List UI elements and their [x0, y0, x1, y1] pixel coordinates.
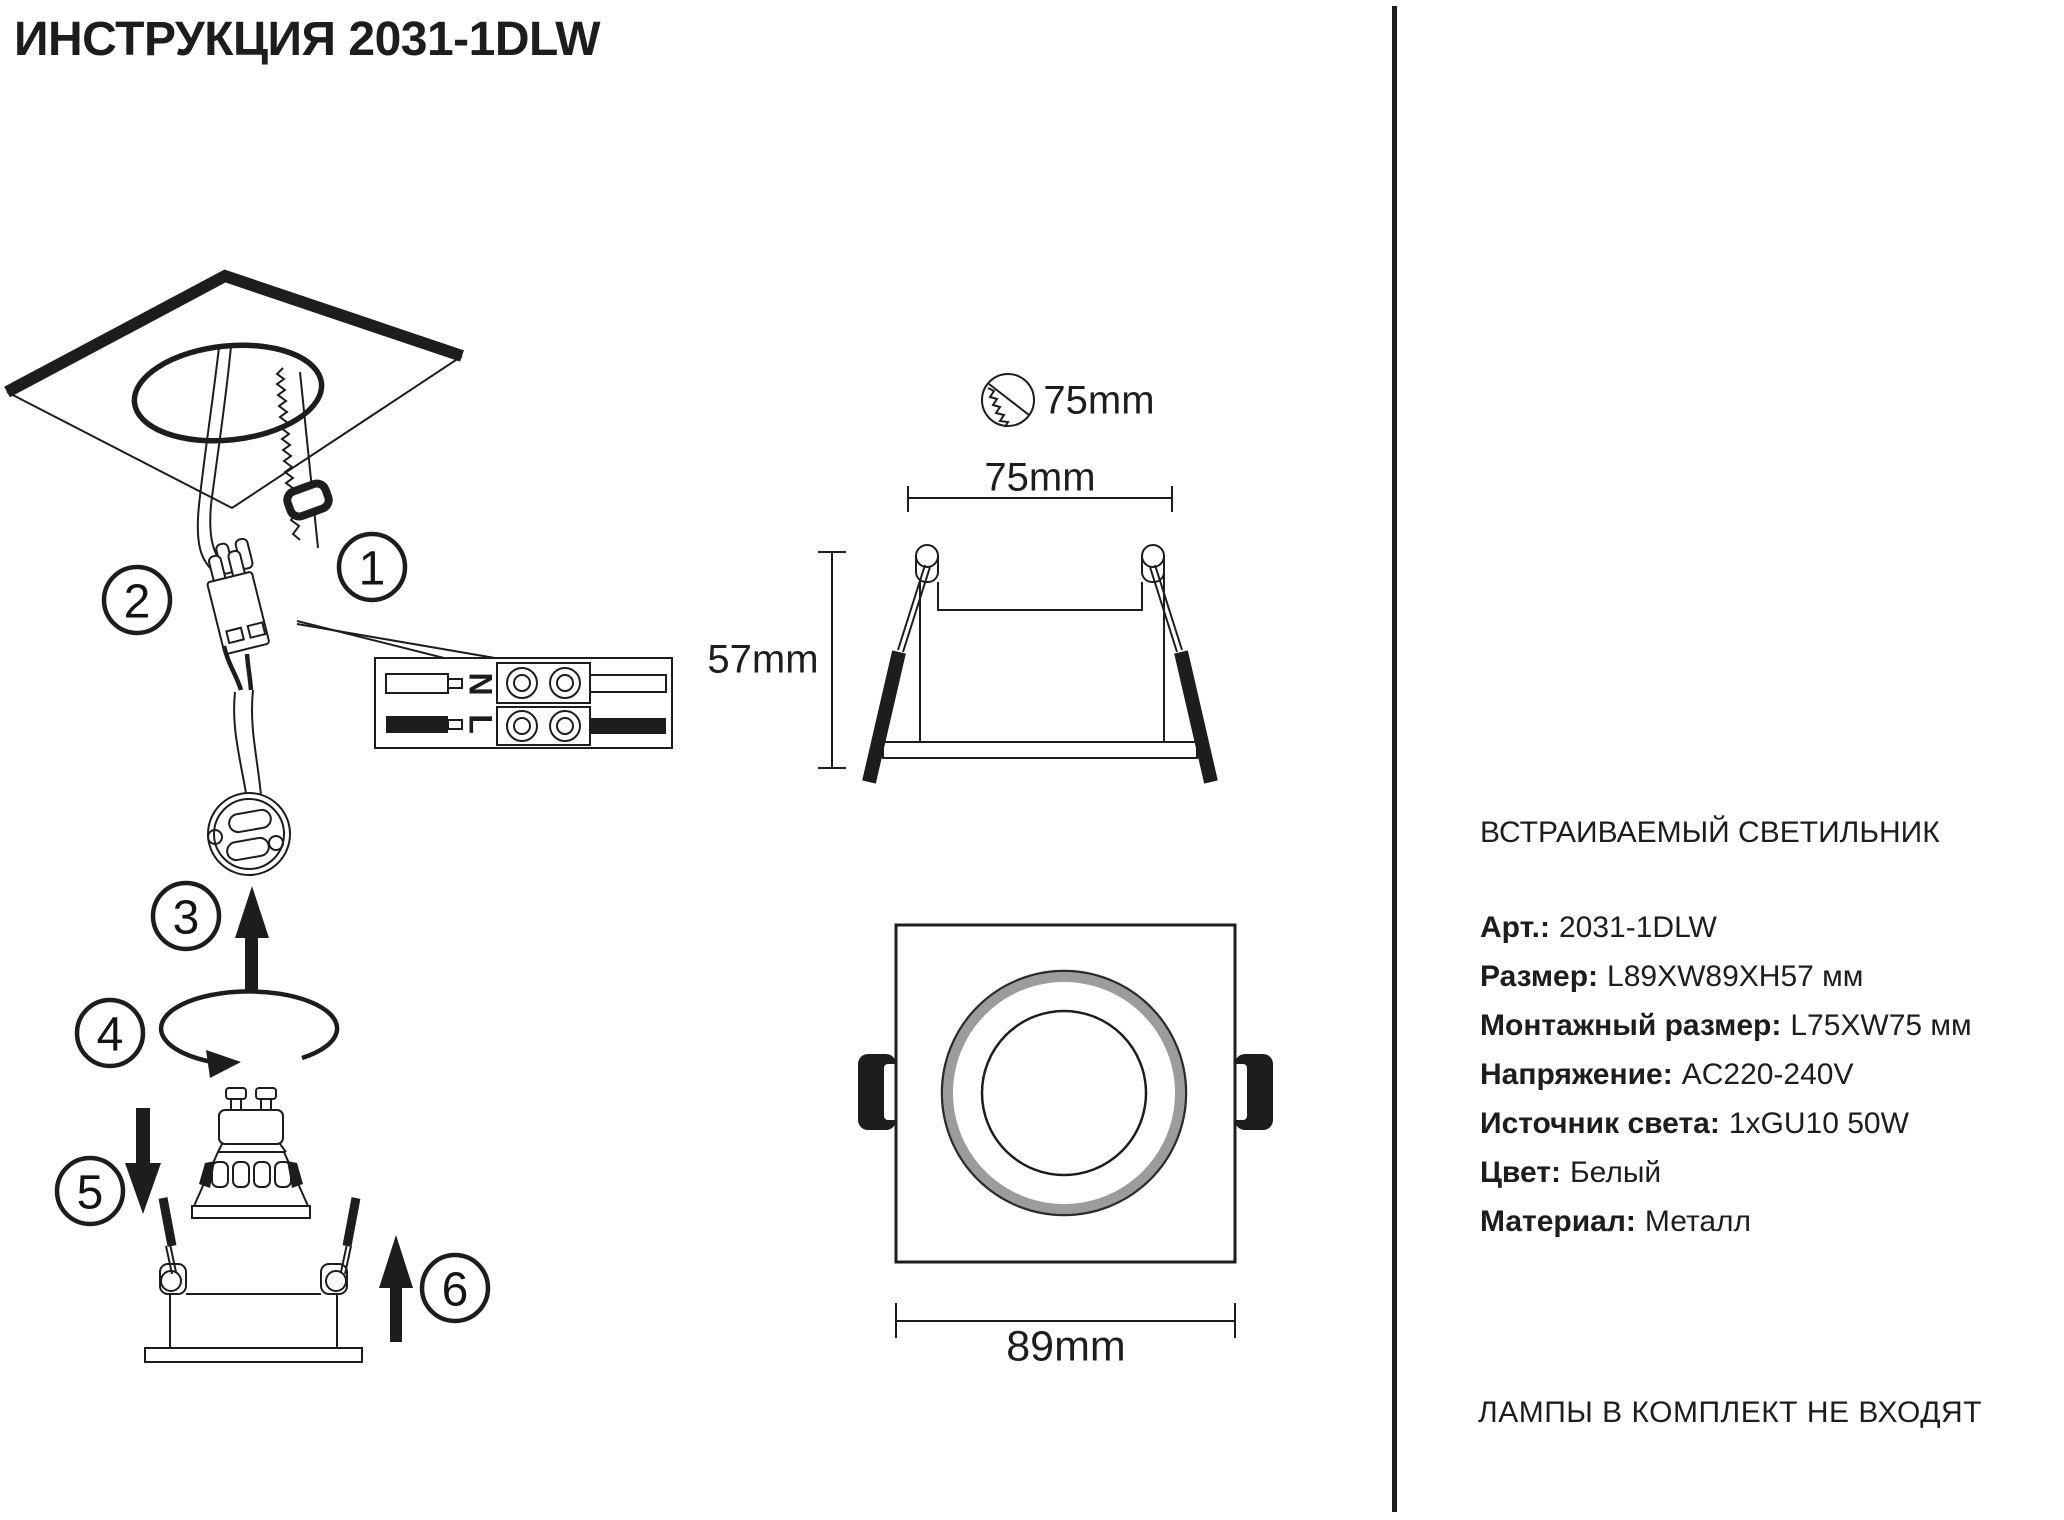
spec-value: 2031-1DLW [1559, 911, 1717, 944]
rotation-arrow [161, 991, 337, 1078]
spec-value: L89XW89XH57 мм [1607, 960, 1863, 993]
wiring-detail-box [375, 658, 672, 748]
page-title: ИНСТРУКЦИЯ 2031-1DLW [14, 12, 600, 67]
neutral-label: N [462, 672, 499, 695]
spec-row-voltage: Напряжение:AC220-240V [1480, 1050, 1972, 1099]
diagram-canvas [0, 0, 2064, 1520]
step-3-number: 3 [173, 891, 200, 946]
live-label: L [462, 714, 499, 734]
spec-list: Арт.:2031-1DLW Размер:L89XW89XH57 мм Мон… [1480, 903, 1972, 1246]
step-6-number: 6 [442, 1263, 469, 1318]
spec-label: Монтажный размер: [1480, 1009, 1781, 1042]
lamps-note: ЛАМПЫ В КОМПЛЕКТ НЕ ВХОДЯТ [1478, 1396, 1982, 1430]
spec-label: Арт.: [1480, 911, 1550, 944]
spec-value: Белый [1570, 1156, 1661, 1189]
spec-label: Цвет: [1480, 1156, 1561, 1189]
step-2-number: 2 [124, 575, 151, 630]
callout-lines [297, 621, 495, 659]
cutout-diameter-label: 75mm [1043, 379, 1154, 424]
step-5-number: 5 [77, 1166, 104, 1221]
arrow-down-step5 [125, 1108, 161, 1214]
mounting-width-label: 75mm [984, 456, 1095, 501]
spec-row-size: Размер:L89XW89XH57 мм [1480, 952, 1972, 1001]
spec-row-art: Арт.:2031-1DLW [1480, 903, 1972, 952]
spec-row-light-source: Источник света:1xGU10 50W [1480, 1099, 1972, 1148]
overall-width-label: 89mm [1006, 1323, 1125, 1372]
step-4-number: 4 [97, 1008, 124, 1063]
spec-label: Размер: [1480, 960, 1598, 993]
spec-row-material: Материал:Металл [1480, 1197, 1972, 1246]
fixture-side-view [869, 545, 1211, 782]
section-divider [1392, 6, 1397, 1512]
fixture-front-view [858, 925, 1273, 1262]
arrow-up-step3 [235, 886, 269, 990]
arrow-up-step6 [379, 1235, 413, 1342]
dim-57-left [818, 552, 846, 768]
spec-value: L75XW75 мм [1790, 1009, 1971, 1042]
spec-row-mounting: Монтажный размер:L75XW75 мм [1480, 1001, 1972, 1050]
spec-value: 1xGU10 50W [1729, 1107, 1909, 1140]
spec-label: Источник света: [1480, 1107, 1720, 1140]
instruction-sheet: { "title": "ИНСТРУКЦИЯ 2031-1DLW", "step… [0, 0, 2064, 1520]
cutout-icon [982, 374, 1034, 427]
spec-value: AC220-240V [1682, 1058, 1854, 1091]
spec-label: Напряжение: [1480, 1058, 1673, 1091]
fixture-housing-small [145, 1198, 362, 1362]
ceiling-panel-drawing [7, 276, 462, 508]
height-label: 57mm [707, 638, 818, 683]
step-1-number: 1 [359, 542, 386, 597]
terminal-connector [199, 538, 273, 799]
gu10-socket [208, 793, 290, 875]
spec-row-color: Цвет:Белый [1480, 1148, 1972, 1197]
spec-label: Материал: [1480, 1205, 1636, 1238]
product-type: ВСТРАИВАЕМЫЙ СВЕТИЛЬНИК [1480, 816, 1940, 850]
gu10-lamp [192, 1088, 310, 1218]
spec-value: Металл [1645, 1205, 1751, 1238]
